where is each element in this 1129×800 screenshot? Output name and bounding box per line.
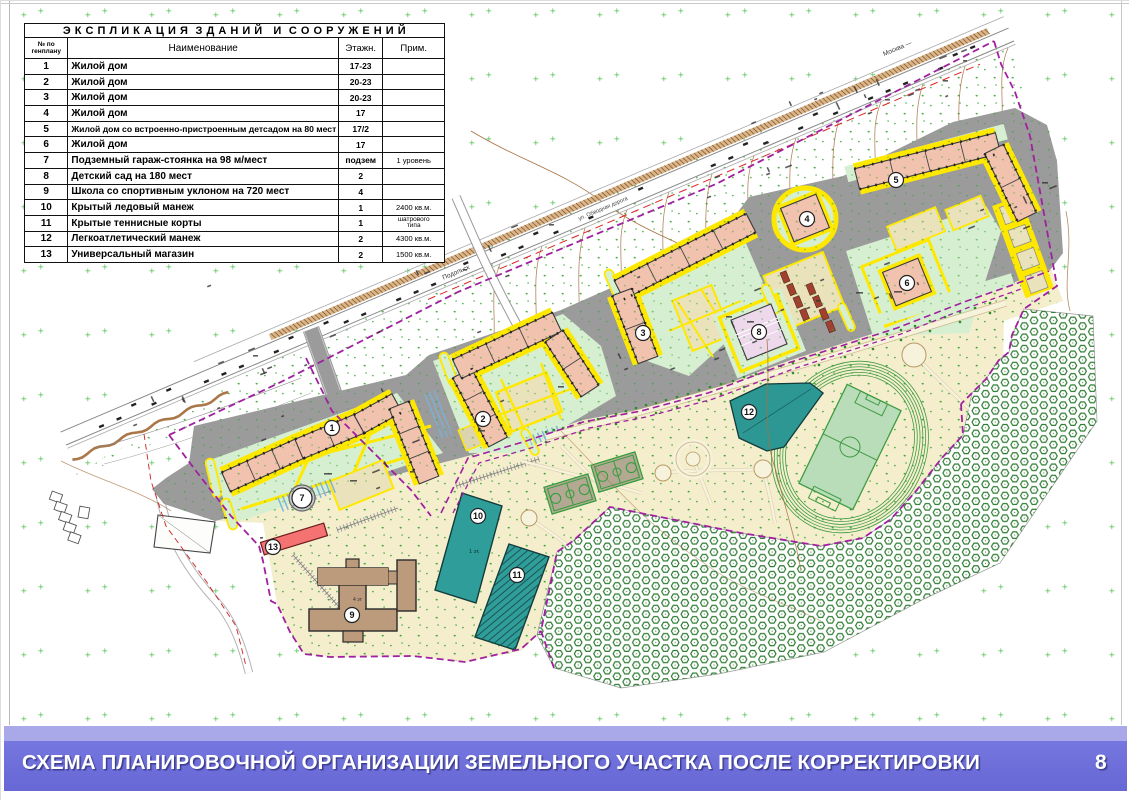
svg-text:4: 4 [804, 214, 809, 224]
svg-text:9: 9 [349, 610, 354, 620]
svg-text:7: 7 [299, 493, 304, 503]
svg-text:3: 3 [640, 328, 645, 338]
svg-text:8: 8 [756, 327, 761, 337]
svg-text:4 эт: 4 эт [353, 597, 363, 603]
svg-text:1: 1 [329, 423, 334, 433]
svg-text:2: 2 [480, 414, 485, 424]
svg-text:11: 11 [512, 570, 522, 580]
svg-text:6: 6 [904, 278, 909, 288]
svg-text:12: 12 [744, 407, 754, 417]
svg-text:13: 13 [268, 542, 278, 552]
svg-text:5: 5 [893, 175, 898, 185]
svg-text:1 эт.: 1 эт. [469, 549, 480, 555]
svg-text:10: 10 [473, 511, 483, 521]
